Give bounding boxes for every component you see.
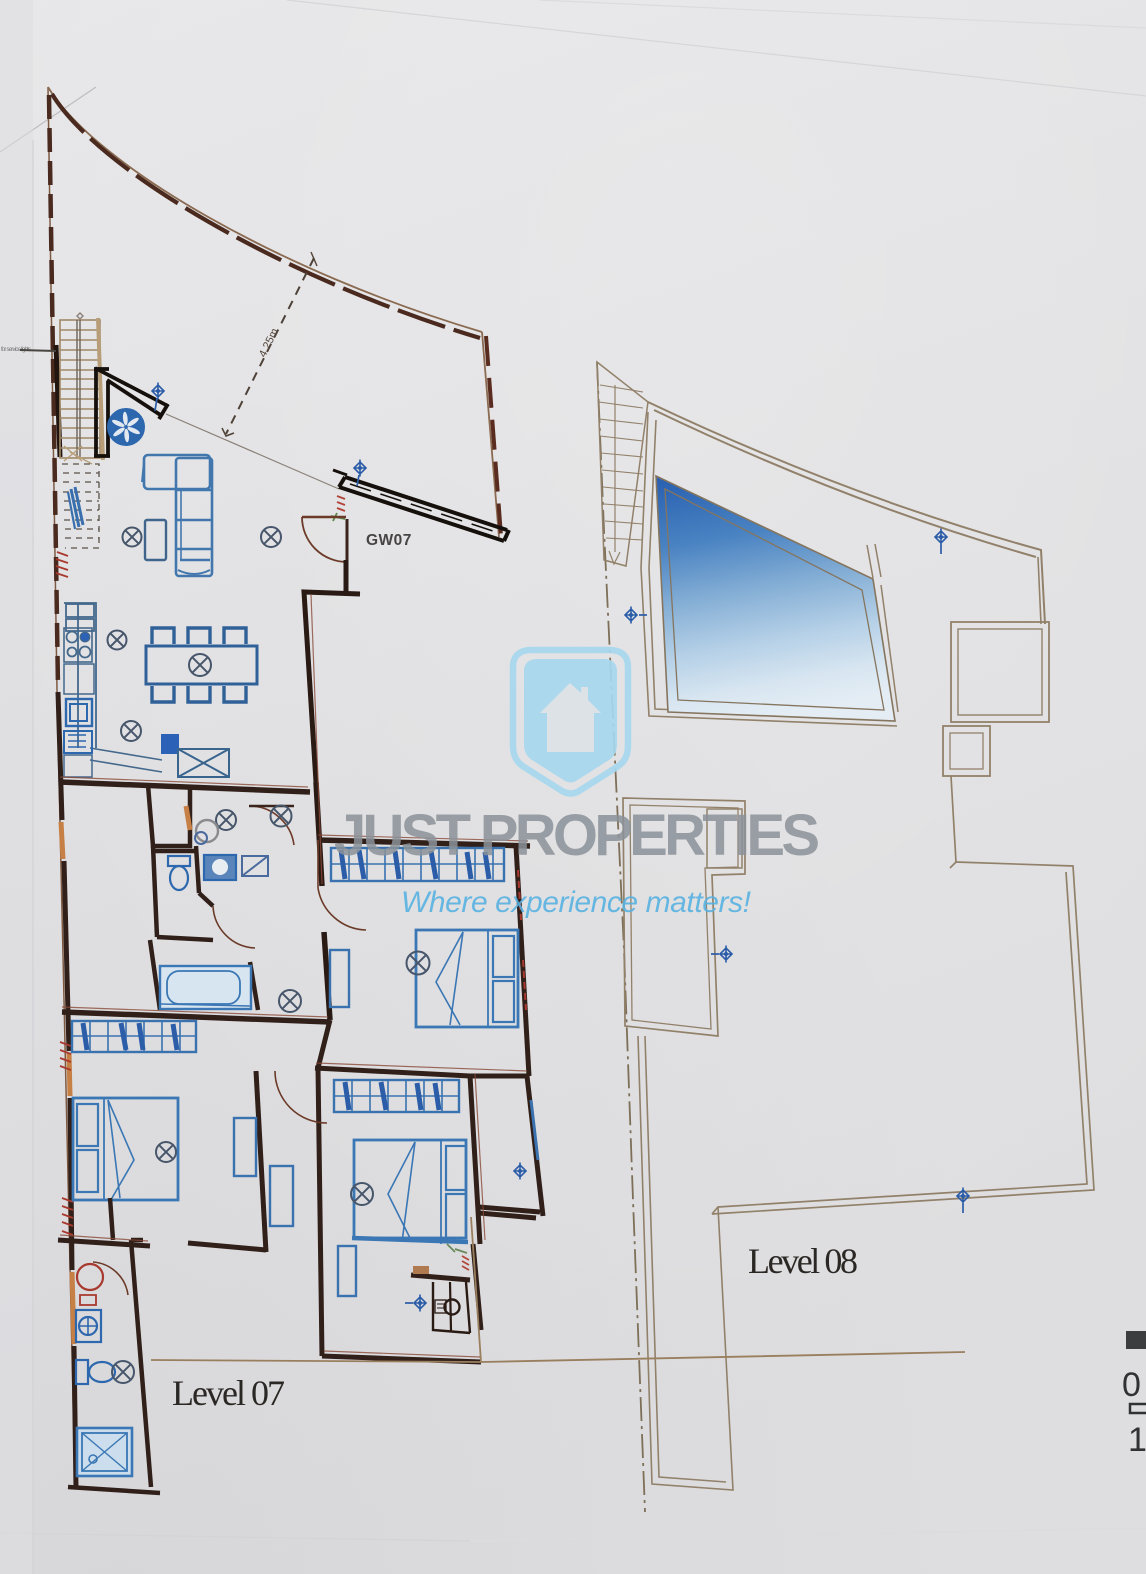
svg-text:Level 08: Level 08 (748, 1241, 858, 1281)
svg-text:Level 07: Level 07 (172, 1373, 285, 1413)
svg-text:Where experience matters!: Where experience matters! (401, 886, 752, 919)
svg-text:GW07: GW07 (366, 532, 412, 549)
svg-text:1: 1 (1128, 1421, 1146, 1459)
svg-text:0: 0 (1122, 1366, 1141, 1404)
svg-text:JUST PROPERTIES: JUST PROPERTIES (334, 803, 820, 868)
